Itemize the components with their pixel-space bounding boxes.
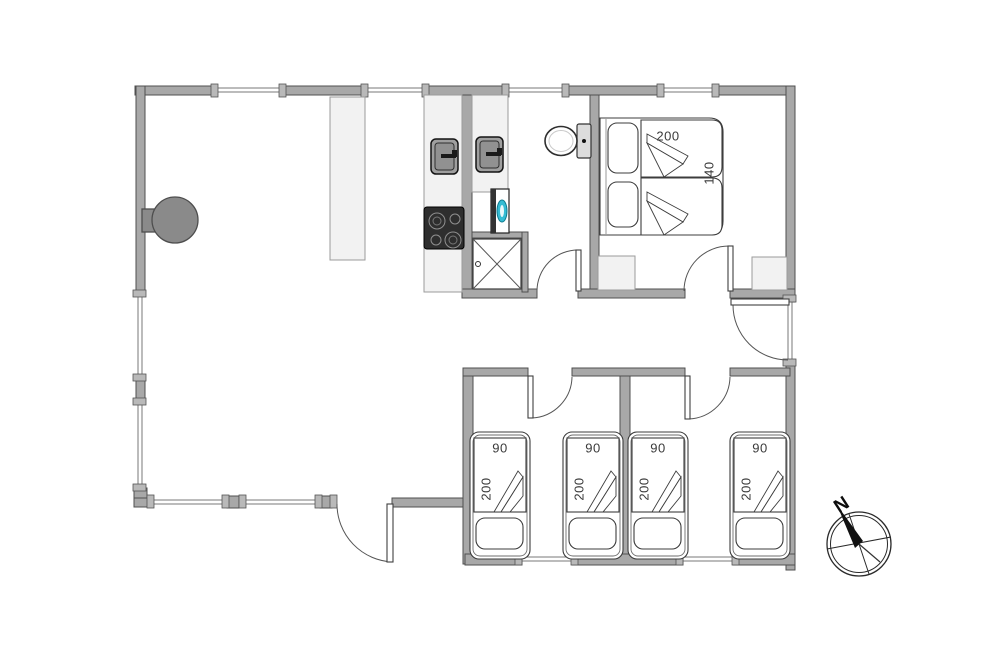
toilet-icon (545, 124, 591, 158)
double-bed-width-label: 140 (703, 161, 716, 184)
single-bed-1-length-label: 200 (480, 477, 493, 500)
single-room-2-door (685, 376, 730, 419)
floor-plan: 200 140 90 200 90 200 90 200 90 200 N (0, 0, 1000, 667)
shower-icon (473, 239, 521, 289)
bathroom-sink-icon (476, 137, 503, 172)
kitchen-sink-icon (431, 139, 458, 174)
single-bed-1-width-label: 90 (492, 442, 507, 455)
floor-plan-drawing (0, 0, 1000, 667)
single-bed-3-length-label: 200 (638, 477, 651, 500)
entrance-door (337, 504, 393, 562)
wardrobe (752, 257, 787, 290)
single-bed-2-width-label: 90 (585, 442, 600, 455)
cooktop-icon (424, 207, 464, 249)
single-bed-2-length-label: 200 (573, 477, 586, 500)
kitchen-island (330, 97, 365, 260)
single-bed-3-width-label: 90 (650, 442, 665, 455)
master-bedroom-door (684, 246, 733, 291)
compass-icon (827, 505, 891, 576)
single-room-1-door (528, 376, 572, 418)
bathroom-door (537, 250, 581, 291)
corridor-exterior-door (731, 299, 789, 360)
wood-stove-icon (142, 197, 198, 243)
double-bed-length-label: 200 (656, 130, 679, 143)
kitchen-counter (424, 95, 462, 292)
single-bed-4-width-label: 90 (752, 442, 767, 455)
washing-machine-icon (491, 189, 509, 233)
single-bed-4-length-label: 200 (740, 477, 753, 500)
wardrobe (598, 256, 635, 290)
